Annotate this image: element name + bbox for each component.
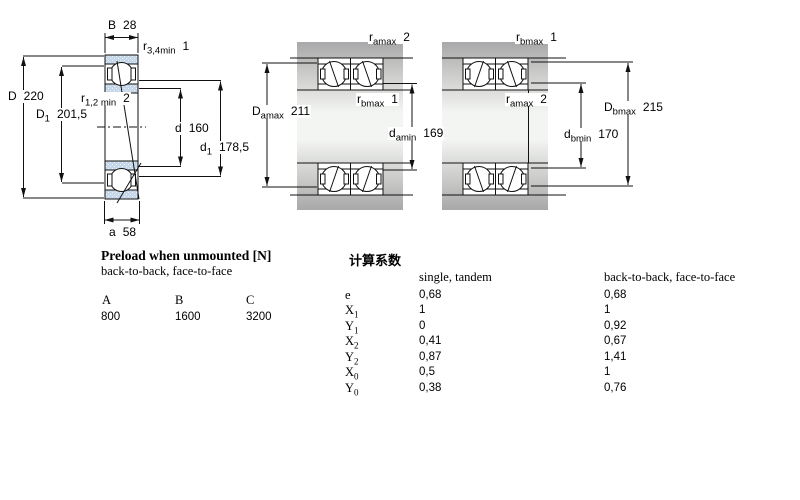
preload-col-b: B [175, 294, 183, 307]
dim-label-d1: d1178,5 [199, 141, 250, 154]
factors-col2-header: back-to-back, face-to-face [604, 271, 735, 284]
dim-label-Damax: Damax211 [251, 105, 311, 118]
factors-title: 计算系数 [349, 250, 401, 269]
factor-row-x0: X0 0,5 1 [345, 365, 775, 380]
preload-col-a: A [102, 294, 111, 307]
dim-label-rbmax-mid: rbmax1 [356, 93, 399, 106]
dim-label-ramax-mid: ramax2 [505, 93, 548, 106]
factor-row-y2: Y2 0,87 1,41 [345, 350, 775, 365]
dim-label-ramax-top: ramax2 [368, 31, 411, 44]
factor-row-y0: Y0 0,38 0,76 [345, 381, 775, 396]
figure-paired-arrangement [442, 42, 633, 210]
factor-row-x2: X2 0,41 0,67 [345, 334, 775, 349]
dim-label-D1: D1201,5 [35, 108, 88, 121]
dim-label-Dbmax: Dbmax215 [603, 101, 664, 114]
preload-value-a: 800 [101, 311, 120, 323]
preload-value-b: 1600 [175, 311, 201, 323]
preload-col-c: C [246, 294, 254, 307]
dim-label-d: d160 [174, 122, 210, 135]
preload-subtitle: back-to-back, face-to-face [101, 265, 232, 278]
dim-label-r34: r3,4min1 [142, 40, 190, 53]
dim-label-a: a58 [108, 226, 137, 239]
factor-row-e: e 0,68 0,68 [345, 288, 775, 303]
factors-col1-header: single, tandem [419, 271, 492, 284]
dim-label-damin: damin169 [388, 127, 444, 140]
dim-label-rbmax-top: rbmax1 [515, 31, 558, 44]
preload-value-c: 3200 [246, 311, 272, 323]
bearing-spec-page: B28 r3,4min1 D220 D1201,5 r1,2 min2 d160… [0, 0, 800, 500]
dim-label-B: B28 [107, 19, 137, 32]
factor-row-y1: Y1 0 0,92 [345, 319, 775, 334]
dim-label-D: D220 [7, 90, 45, 103]
dim-label-dbmin: dbmin170 [563, 128, 619, 141]
factor-row-x1: X1 1 1 [345, 303, 775, 318]
dim-label-r12: r1,2 min2 [80, 92, 131, 105]
preload-title: Preload when unmounted [N] [101, 249, 271, 263]
